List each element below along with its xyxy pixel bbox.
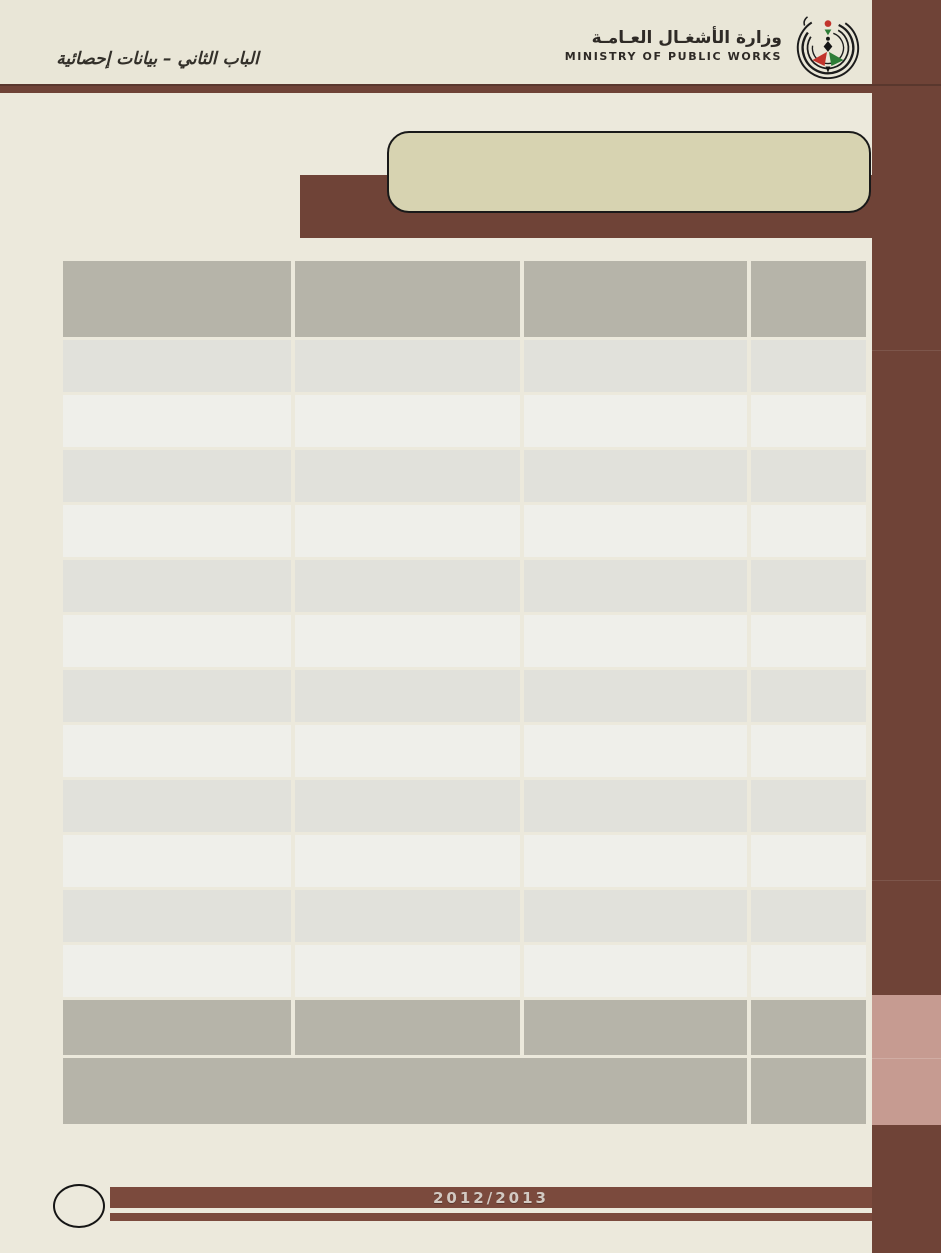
table-row [63,615,866,667]
table-row [63,725,866,777]
sidebar-accent-seam [872,1058,941,1059]
table-cell [524,945,747,997]
table-cell [524,780,747,832]
table-row [63,560,866,612]
footer-bar-thick: 2012/2013 [110,1187,941,1208]
table-cell [63,725,291,777]
table-row [63,835,866,887]
table-cell [524,670,747,722]
table-cell [63,340,291,392]
ministry-name-arabic: وزارة الأشغـال العـامـة [592,27,782,49]
table-cell [524,725,747,777]
table-cell [63,1058,747,1124]
table-cell [63,450,291,502]
table-row [63,340,866,392]
sidebar-seam [872,350,941,351]
table-cell [524,340,747,392]
ministry-names: وزارة الأشغـال العـامـة MINISTRY OF PUBL… [565,27,782,65]
ministry-logo-block: وزارة الأشغـال العـامـة MINISTRY OF PUBL… [565,8,866,84]
table-cell [63,780,291,832]
table-row [63,395,866,447]
table-cell [295,835,520,887]
table-cell [295,890,520,942]
table-title-box [387,131,871,213]
ministry-swirl-logo-icon [788,9,866,83]
table-cell [751,890,866,942]
page-header: الباب الثاني – بيانات إحصائية وزارة الأش… [0,0,941,84]
right-sidebar [872,0,941,1253]
table-cell [63,505,291,557]
table-cell [295,945,520,997]
table-cell [524,615,747,667]
table-cell [295,615,520,667]
table-row [63,890,866,942]
table-cell [295,560,520,612]
table-cell [524,450,747,502]
table-row [63,670,866,722]
table-row [63,780,866,832]
table-cell [751,505,866,557]
ministry-name-english: MINISTRY OF PUBLIC WORKS [565,49,782,65]
footer-bar-thin [110,1213,941,1221]
table-cell [63,615,291,667]
table-cell [751,945,866,997]
table-cell [751,1000,866,1055]
table-footer-row [63,1058,866,1124]
table-cell [751,1058,866,1124]
table-cell [751,780,866,832]
table-cell [524,505,747,557]
table-cell [295,505,520,557]
table-cell [63,945,291,997]
page-number-ellipse [53,1184,105,1228]
sidebar-accent-block [872,995,941,1125]
table-cell [751,560,866,612]
table-cell [295,1000,520,1055]
table-cell [63,890,291,942]
table-cell [524,395,747,447]
table-cell [524,261,747,337]
header-divider-bar [0,84,941,93]
table-cell [751,615,866,667]
table-row [63,945,866,997]
table-cell [751,670,866,722]
table-cell [295,395,520,447]
table-cell [524,1000,747,1055]
table-cell [751,340,866,392]
table-cell [524,835,747,887]
table-row [63,505,866,557]
table-cell [295,261,520,337]
table-cell [295,670,520,722]
table-cell [63,560,291,612]
table-cell [63,261,291,337]
table-cell [63,395,291,447]
table-cell [751,725,866,777]
table-cell [295,780,520,832]
table-cell [524,890,747,942]
table-footer-row [63,1000,866,1055]
sidebar-seam [872,880,941,881]
table-cell [295,340,520,392]
table-cell [524,560,747,612]
table-cell [295,725,520,777]
table-cell [751,835,866,887]
chapter-title: الباب الثاني – بيانات إحصائية [30,40,285,78]
table-header-row [63,261,866,337]
table-row [63,450,866,502]
table-cell [295,450,520,502]
table-cell [63,835,291,887]
statistics-table [63,261,866,1124]
table-cell [751,450,866,502]
table-cell [751,261,866,337]
year-label: 2012/2013 [433,1189,618,1207]
table-cell [63,670,291,722]
table-cell [751,395,866,447]
table-cell [63,1000,291,1055]
